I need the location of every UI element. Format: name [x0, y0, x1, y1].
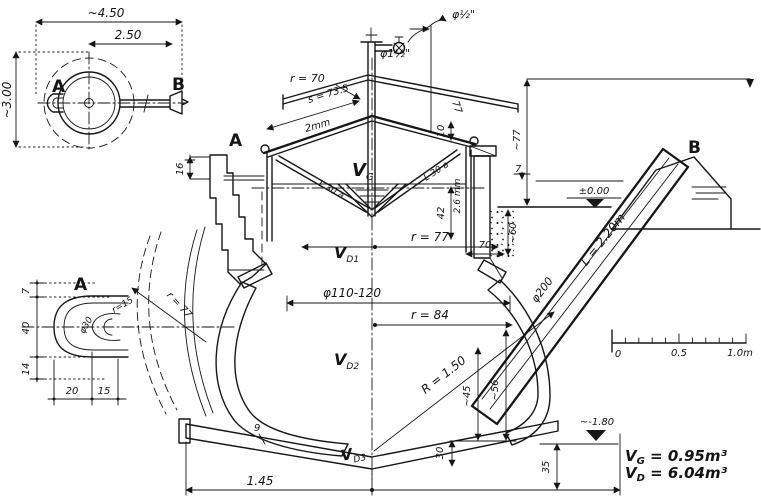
plan-port-a-label: A [52, 77, 66, 97]
gas-holder-drum: 2mm L 30 a L 30 a VG 10 42 2.6 mm [252, 116, 486, 252]
roof-radius-label: r = 70 [290, 72, 325, 85]
detail-a-marker: A [74, 275, 88, 295]
mouth-radius-label: r=15 [111, 295, 136, 315]
strut-left-label: L 30 a [317, 179, 346, 202]
valve-diameter-label: φ½" [452, 8, 475, 21]
ground-levels: ±0.00 7 ~77 [498, 79, 754, 208]
dim-35: 35 [541, 461, 552, 474]
inlet-b-marker: B [688, 138, 701, 158]
volume-results: VG = 0.95m³ VD = 6.04m³ [625, 447, 728, 484]
pocket-depth-dim: ~60 [508, 222, 519, 243]
radius-mid-dim: r = 84 [411, 308, 449, 322]
volume-zone-labels: VD1 VD2 VD3 [334, 243, 367, 468]
plan-depth-dim: ~3.00 [0, 81, 14, 118]
right-wall: 70 ~60 [466, 146, 519, 283]
scale-half-label: 0.5 [671, 348, 687, 359]
height-above-dim: ~77 [512, 129, 523, 151]
freeboard-dim: 7 [515, 164, 522, 175]
dim-30: 30 [435, 447, 446, 460]
digester-volume-result: VD = 6.04m³ [625, 464, 728, 484]
opening-diameter-dim: φ110-120 [323, 286, 381, 300]
gas-volume-label: VG [352, 160, 374, 183]
pipe-diameter-label: φ1½" [380, 47, 410, 60]
plan-offset-dim: 2.50 [115, 28, 142, 42]
scale-bar: 0 0.5 1.0m [612, 330, 753, 360]
drawing-page: A B ~4.50 2.50 ~3.00 φ½" φ1½" 77 s = 73.… [0, 0, 761, 504]
detail-wall-radius: r = 77 [164, 290, 194, 321]
drum-height-dim: 42 [436, 207, 447, 220]
section-a-marker: A [229, 131, 243, 151]
floor-thickness-label: 9 [254, 423, 260, 434]
scale-one-label: 1.0m [727, 348, 753, 359]
strut-right-label: L 30 a [422, 160, 451, 183]
biogas-plant-technical-drawing: A B ~4.50 2.50 ~3.00 φ½" φ1½" 77 s = 73.… [0, 0, 761, 504]
drum-radius-dim: r = 77 [411, 230, 449, 244]
level-bottom-marker-icon [586, 430, 606, 441]
vd2-label: VD2 [334, 350, 359, 372]
level-zero-label: ±0.00 [579, 186, 610, 197]
plan-view: A B ~4.50 2.50 ~3.00 [0, 6, 195, 165]
dim-45: ~45 [462, 385, 473, 406]
detail-dim-14: 14 [21, 363, 32, 376]
dim-56: ~56 [490, 379, 501, 400]
vd1-label: VD1 [334, 243, 359, 265]
vd3-label: VD3 [339, 442, 367, 468]
left-wall: 16 A [175, 131, 272, 288]
drum-wall-thickness: 2.6 mm [453, 178, 463, 213]
rim-height-dim: 10 [436, 125, 447, 138]
scale-zero-label: 0 [615, 349, 621, 360]
plan-width-dim: ~4.50 [88, 6, 125, 20]
detail-dim-20: 20 [66, 386, 79, 397]
wall-top-dim: 16 [175, 163, 186, 176]
roof-slope-dim: 77 [449, 100, 464, 116]
pocket-width-dim: 70 [479, 240, 492, 251]
detail-a: A r=15 φ30 7 40 14 20 15 r = 77 [21, 227, 235, 416]
plan-port-b-label: B [172, 75, 185, 95]
detail-dim-15: 15 [98, 386, 111, 397]
detail-dim-40: 40 [21, 322, 32, 335]
base-width-dim: 1.45 [247, 474, 274, 488]
detail-dim-7: 7 [21, 287, 32, 294]
level-bottom-label: ~-1.80 [580, 417, 614, 428]
